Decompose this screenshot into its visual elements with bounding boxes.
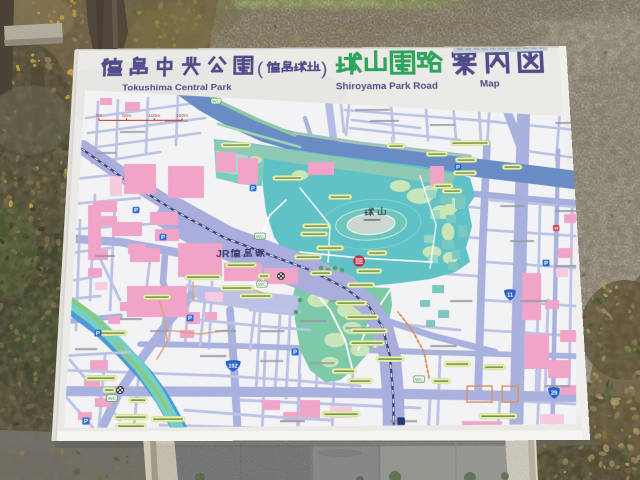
svg-text:): ) bbox=[321, 59, 327, 78]
svg-text:0m: 0m bbox=[96, 113, 103, 118]
svg-text:WC: WC bbox=[258, 281, 266, 286]
svg-text:(: ( bbox=[257, 59, 264, 78]
svg-text:192: 192 bbox=[228, 363, 238, 370]
svg-text:100m: 100m bbox=[148, 113, 161, 118]
svg-text:11: 11 bbox=[507, 292, 513, 299]
svg-text:Map: Map bbox=[480, 79, 501, 89]
svg-text:WC: WC bbox=[212, 99, 220, 104]
svg-text:P: P bbox=[251, 186, 255, 192]
svg-text:Tokushima Central Park: Tokushima Central Park bbox=[122, 82, 233, 92]
svg-text:P: P bbox=[134, 208, 139, 214]
svg-text:WC: WC bbox=[415, 376, 423, 382]
svg-text:Shiroyama Park Road: Shiroyama Park Road bbox=[336, 81, 439, 91]
svg-text:P: P bbox=[188, 316, 193, 323]
svg-text:50m: 50m bbox=[122, 113, 132, 118]
svg-text:29: 29 bbox=[551, 390, 558, 397]
svg-text:P: P bbox=[456, 165, 461, 171]
svg-text:WC: WC bbox=[108, 395, 116, 401]
svg-text:150m: 150m bbox=[176, 113, 188, 118]
svg-text:P: P bbox=[293, 350, 298, 357]
svg-text:JR: JR bbox=[216, 249, 230, 261]
svg-text:WC: WC bbox=[256, 234, 264, 239]
svg-text:P: P bbox=[161, 235, 166, 241]
